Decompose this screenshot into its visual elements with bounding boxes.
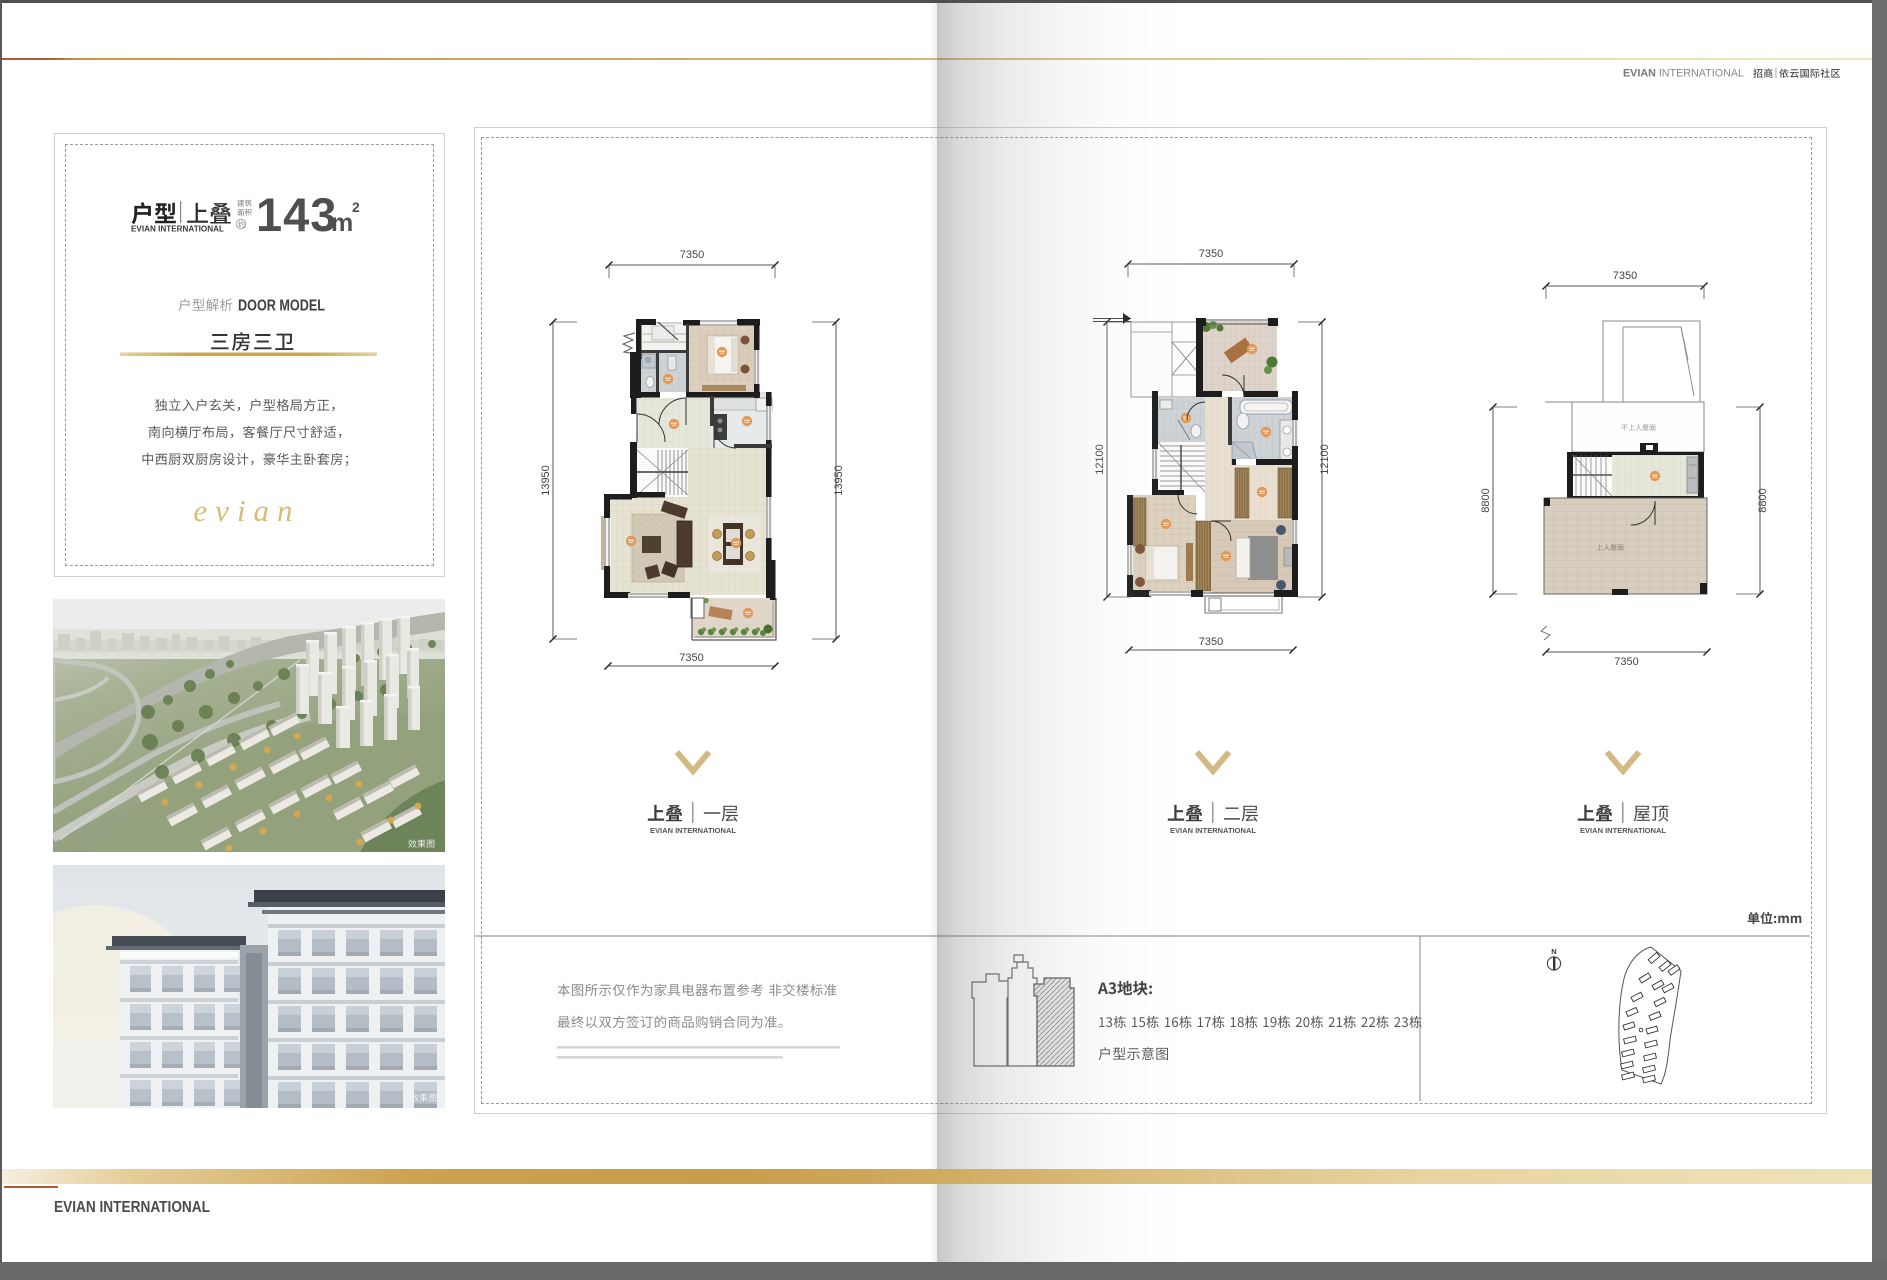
- svg-text:8800: 8800: [1480, 488, 1492, 512]
- svg-text:EVIAN INTERNATIONAL: EVIAN INTERNATIONAL: [1623, 68, 1744, 80]
- svg-text:DOOR MODEL: DOOR MODEL: [238, 298, 325, 315]
- svg-text:13950: 13950: [540, 465, 552, 496]
- svg-text:EVIAN INTERNATIONAL: EVIAN INTERNATIONAL: [54, 1199, 210, 1216]
- svg-text:EVIAN INTERNATIONAL: EVIAN INTERNATIONAL: [131, 225, 224, 234]
- svg-text:7350: 7350: [1199, 248, 1223, 260]
- svg-text:7350: 7350: [679, 652, 703, 664]
- svg-text:2: 2: [352, 199, 360, 215]
- svg-text:EVIAN INTERNATIONAL: EVIAN INTERNATIONAL: [650, 828, 737, 835]
- svg-text:7350: 7350: [680, 249, 704, 261]
- svg-text:143: 143: [256, 188, 337, 241]
- svg-text:EVIAN INTERNATIONAL: EVIAN INTERNATIONAL: [1580, 828, 1667, 835]
- svg-text:N: N: [1551, 947, 1556, 956]
- svg-text:7350: 7350: [1199, 636, 1223, 648]
- svg-text:7350: 7350: [1614, 656, 1638, 668]
- svg-text:8800: 8800: [1757, 488, 1769, 512]
- svg-text:13950: 13950: [833, 465, 845, 496]
- svg-text:m: m: [331, 209, 353, 237]
- svg-text:12100: 12100: [1319, 444, 1331, 475]
- svg-text:7350: 7350: [1613, 270, 1637, 282]
- svg-text:evian: evian: [193, 493, 300, 528]
